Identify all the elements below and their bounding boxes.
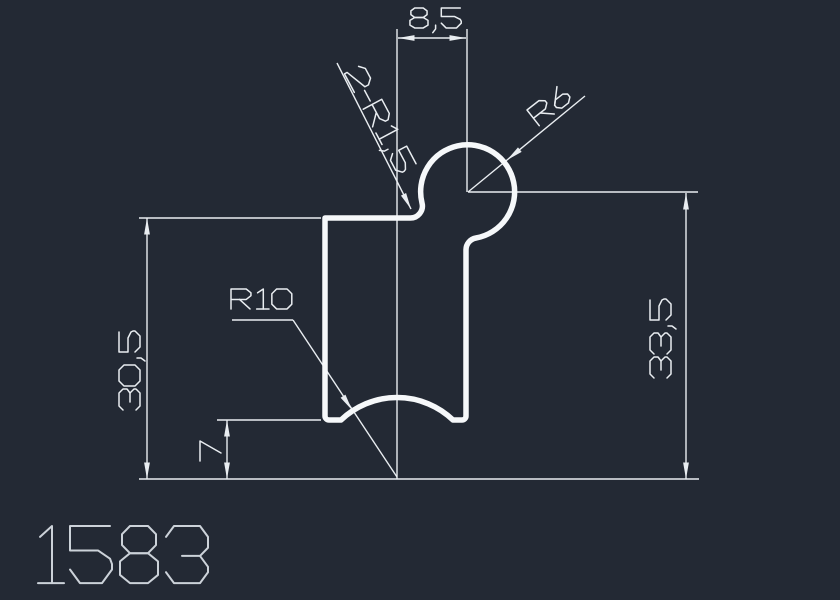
dimension-lines: [139, 29, 699, 479]
drawing-number-label: [38, 526, 208, 583]
cad-viewport: 1583: [0, 0, 840, 600]
dimension-arrows: [144, 35, 689, 479]
dim-2r15-label: [340, 64, 416, 177]
dim-30-5-label: [119, 331, 145, 410]
dim-7-label: [200, 441, 221, 461]
dim-r10-label: [231, 289, 292, 309]
part-profile-outline: [325, 145, 515, 420]
cad-canvas: [0, 0, 840, 600]
dim-r6-label: [527, 84, 572, 125]
dim-33-5-label: [650, 299, 676, 378]
dimension-labels: [38, 8, 676, 583]
dim-8-5-label: [410, 8, 461, 33]
